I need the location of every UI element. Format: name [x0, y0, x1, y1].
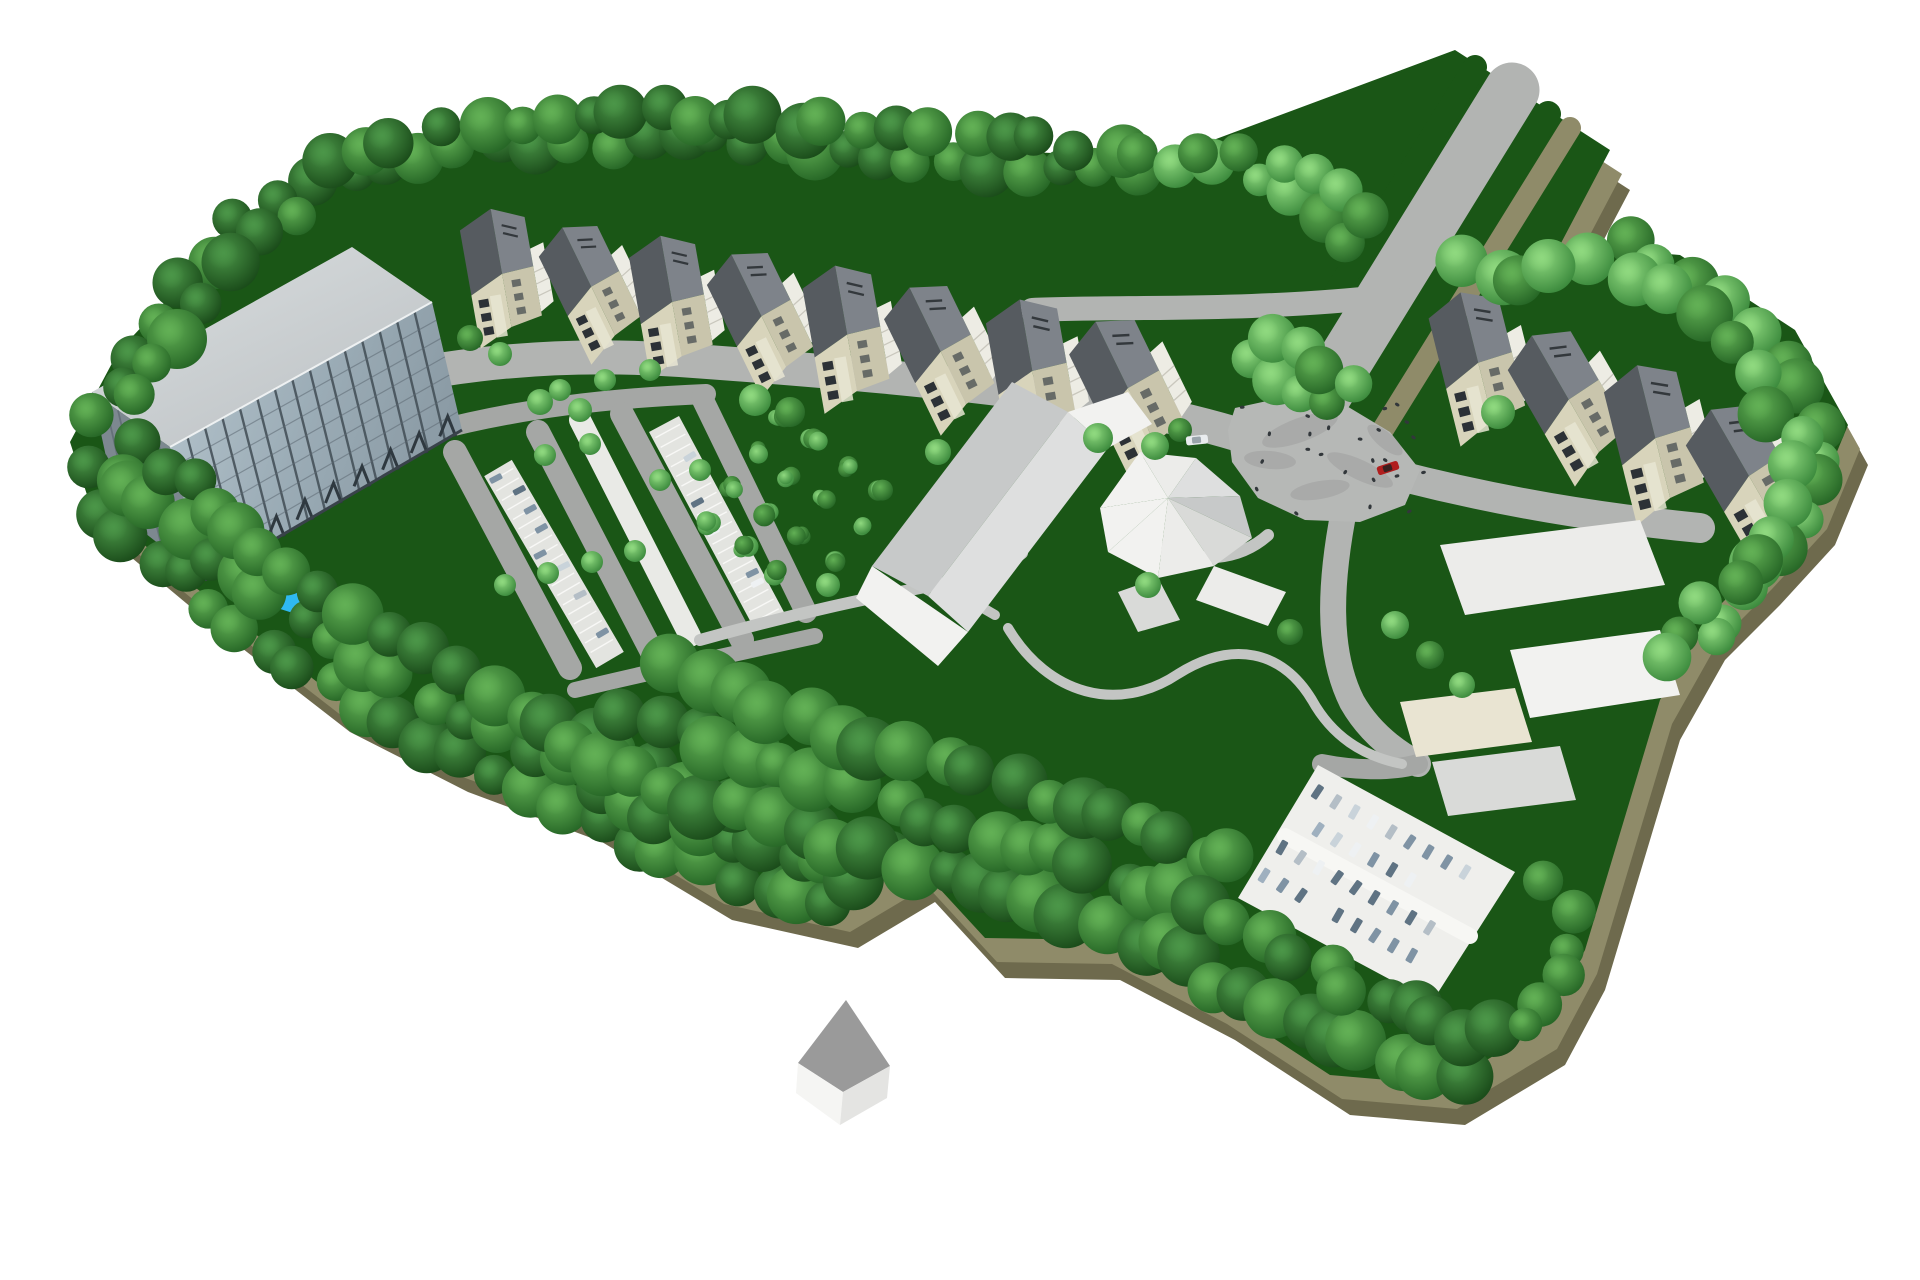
window [827, 390, 839, 400]
tree [1509, 1008, 1542, 1041]
tree [1135, 572, 1161, 598]
tree [488, 342, 512, 366]
tree [925, 439, 951, 465]
tree [69, 393, 113, 437]
tree [944, 745, 994, 795]
tree [1053, 131, 1093, 171]
tree [494, 574, 516, 596]
road [1032, 296, 1390, 310]
tree [1277, 619, 1303, 645]
tree [594, 85, 648, 139]
window [825, 375, 837, 385]
tree [639, 359, 661, 381]
tree [537, 562, 559, 584]
window [648, 327, 659, 337]
tree [1140, 811, 1193, 864]
tree [1523, 861, 1563, 901]
tree [1552, 890, 1596, 934]
tree [422, 107, 461, 146]
tree [114, 374, 155, 415]
tree [1014, 116, 1054, 156]
tree [903, 107, 952, 156]
tree [816, 573, 840, 597]
tree [457, 325, 483, 351]
window [478, 299, 489, 309]
tree [1178, 133, 1218, 173]
tree [1141, 432, 1169, 460]
window [822, 361, 834, 371]
tree [1199, 828, 1253, 882]
tree [270, 646, 314, 690]
tree [593, 689, 645, 741]
tree [1416, 641, 1444, 669]
shrub [868, 480, 893, 501]
tree [1203, 899, 1249, 945]
tree [581, 551, 603, 573]
tree [549, 379, 571, 401]
tree [624, 540, 646, 562]
tree [1264, 934, 1311, 981]
shrub [733, 536, 758, 558]
rendering-canvas [0, 0, 1920, 1280]
window [650, 341, 661, 351]
tree [1316, 966, 1366, 1016]
tree [1117, 133, 1158, 174]
tree [1381, 611, 1409, 639]
window [481, 312, 492, 322]
tree [278, 197, 316, 235]
tree [739, 384, 771, 416]
tree [1643, 633, 1692, 682]
tree [689, 459, 711, 481]
tree [1342, 192, 1388, 238]
tree [363, 118, 413, 168]
tree [1335, 365, 1372, 402]
tree [1718, 560, 1763, 605]
tree [1521, 239, 1575, 293]
tree [533, 95, 583, 145]
window [483, 326, 494, 336]
tree [724, 86, 782, 144]
tree [1083, 423, 1113, 453]
site-plan-svg [0, 0, 1920, 1280]
tree [534, 444, 556, 466]
tree [875, 721, 935, 781]
tree [202, 233, 260, 291]
tree [775, 397, 805, 427]
tree [568, 398, 592, 422]
tree [796, 97, 845, 146]
tree [1220, 133, 1258, 171]
shrub [787, 526, 811, 545]
tree [527, 389, 553, 415]
tree [1449, 672, 1475, 698]
tree [579, 433, 601, 455]
tree [1481, 395, 1515, 429]
tree [1052, 834, 1112, 894]
tree [594, 369, 616, 391]
tree [649, 469, 671, 491]
